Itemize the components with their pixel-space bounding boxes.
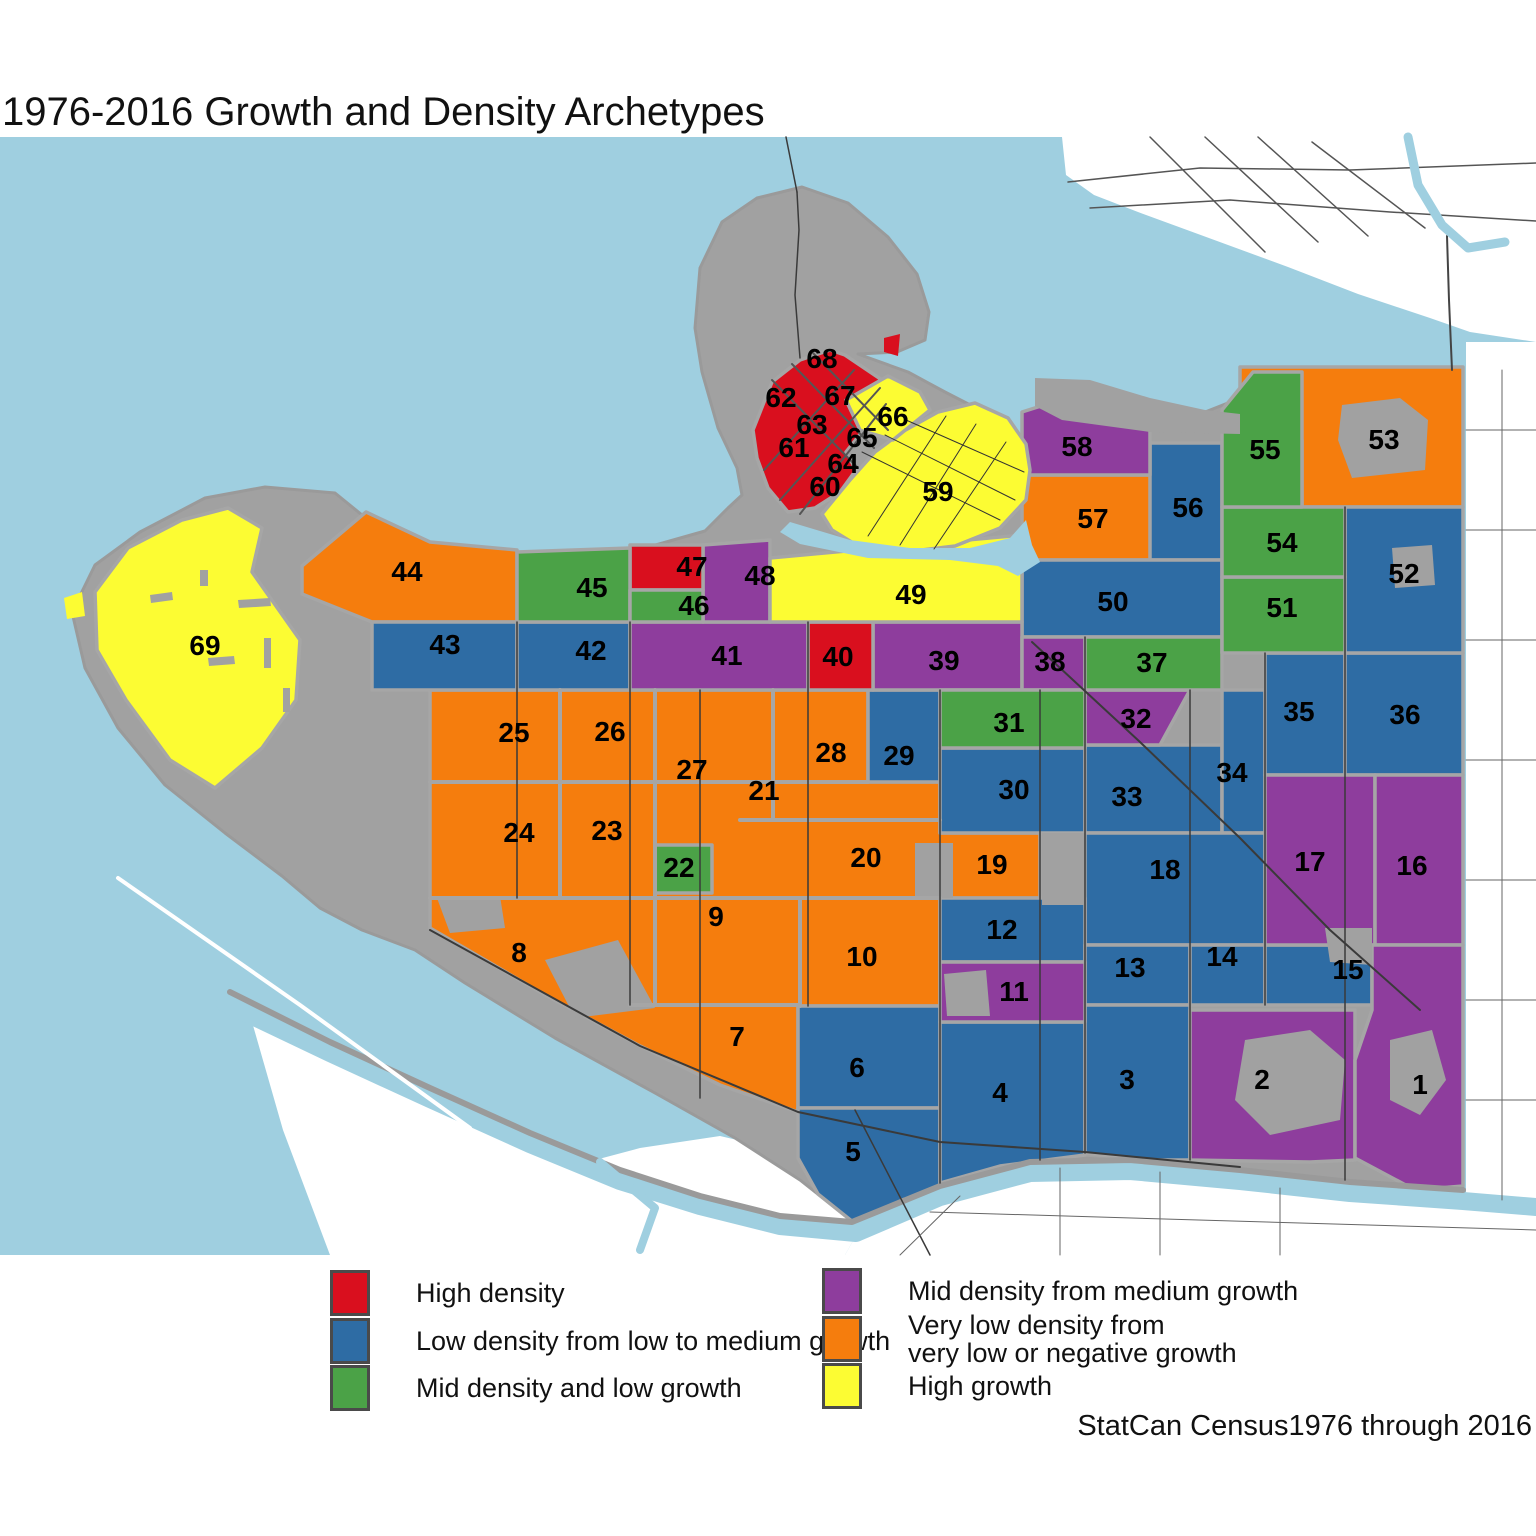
region-label-65: 65: [846, 422, 877, 453]
map-area-blue: [1085, 833, 1265, 945]
map-area-land: [264, 638, 271, 668]
region-label-59: 59: [922, 476, 953, 507]
region-label-62: 62: [765, 382, 796, 413]
region-label-32: 32: [1120, 703, 1151, 734]
region-label-35: 35: [1283, 696, 1314, 727]
map-canvas: 1234567891011121314151617181920212223242…: [0, 0, 1536, 1536]
region-label-25: 25: [498, 717, 529, 748]
region-label-67: 67: [824, 380, 855, 411]
region-label-23: 23: [591, 815, 622, 846]
region-label-26: 26: [594, 716, 625, 747]
region-label-55: 55: [1249, 434, 1280, 465]
region-label-20: 20: [850, 842, 881, 873]
region-label-53: 53: [1368, 424, 1399, 455]
region-label-57: 57: [1077, 503, 1108, 534]
map-area-white: [1466, 342, 1536, 1208]
region-label-49: 49: [895, 579, 926, 610]
region-label-37: 37: [1136, 647, 1167, 678]
region-label-4: 4: [992, 1077, 1008, 1108]
region-label-69: 69: [189, 630, 220, 661]
map-area-blue: [517, 622, 630, 690]
region-label-9: 9: [708, 901, 724, 932]
region-label-38: 38: [1034, 646, 1065, 677]
region-label-33: 33: [1111, 781, 1142, 812]
region-label-7: 7: [729, 1021, 745, 1052]
map-area-blue: [1085, 1005, 1190, 1160]
region-label-51: 51: [1266, 592, 1297, 623]
region-label-8: 8: [511, 937, 527, 968]
map-area-blue: [1085, 745, 1222, 833]
region-label-44: 44: [391, 556, 423, 587]
map-area-blue: [798, 1006, 940, 1108]
region-label-5: 5: [845, 1136, 861, 1167]
region-label-39: 39: [928, 645, 959, 676]
map-area-land: [1042, 833, 1085, 905]
map-area-land: [283, 688, 290, 712]
region-label-52: 52: [1388, 558, 1419, 589]
region-label-42: 42: [575, 635, 606, 666]
region-label-28: 28: [815, 737, 846, 768]
region-label-3: 3: [1119, 1064, 1135, 1095]
region-label-21: 21: [748, 775, 779, 806]
map-area-land: [200, 570, 208, 586]
region-label-40: 40: [822, 641, 853, 672]
region-label-22: 22: [663, 852, 694, 883]
region-label-11: 11: [999, 976, 1029, 1007]
region-label-12: 12: [986, 914, 1017, 945]
map-area-land: [944, 970, 990, 1016]
region-label-1: 1: [1412, 1069, 1428, 1100]
region-label-46: 46: [678, 590, 709, 621]
map-area-land: [915, 843, 953, 898]
region-label-54: 54: [1266, 527, 1298, 558]
region-label-30: 30: [998, 774, 1029, 805]
region-label-16: 16: [1396, 850, 1427, 881]
region-label-6: 6: [849, 1052, 865, 1083]
region-label-63: 63: [796, 409, 827, 440]
region-label-34: 34: [1216, 757, 1248, 788]
region-label-2: 2: [1254, 1064, 1270, 1095]
region-label-15: 15: [1332, 954, 1363, 985]
attribution: StatCan Census1976 through 2016: [1077, 1410, 1532, 1443]
region-label-19: 19: [976, 849, 1007, 880]
region-label-41: 41: [711, 640, 742, 671]
region-label-58: 58: [1061, 431, 1092, 462]
region-label-27: 27: [676, 754, 707, 785]
region-label-47: 47: [676, 551, 707, 582]
region-label-29: 29: [883, 740, 914, 771]
region-label-31: 31: [993, 707, 1024, 738]
region-label-10: 10: [846, 941, 877, 972]
region-label-36: 36: [1389, 699, 1420, 730]
region-label-13: 13: [1114, 952, 1145, 983]
region-label-14: 14: [1206, 941, 1238, 972]
region-label-50: 50: [1097, 586, 1128, 617]
page: { "title": "1976-2016 Growth and Density…: [0, 0, 1536, 1536]
region-label-43: 43: [429, 629, 460, 660]
page-title: 1976-2016 Growth and Density Archetypes: [2, 90, 765, 135]
region-label-45: 45: [576, 572, 607, 603]
region-label-66: 66: [877, 401, 908, 432]
region-label-17: 17: [1294, 846, 1325, 877]
region-label-56: 56: [1172, 492, 1203, 523]
region-label-18: 18: [1149, 854, 1180, 885]
region-label-24: 24: [503, 817, 535, 848]
region-label-68: 68: [806, 343, 837, 374]
map-area-green: [517, 548, 630, 622]
region-label-48: 48: [744, 560, 775, 591]
